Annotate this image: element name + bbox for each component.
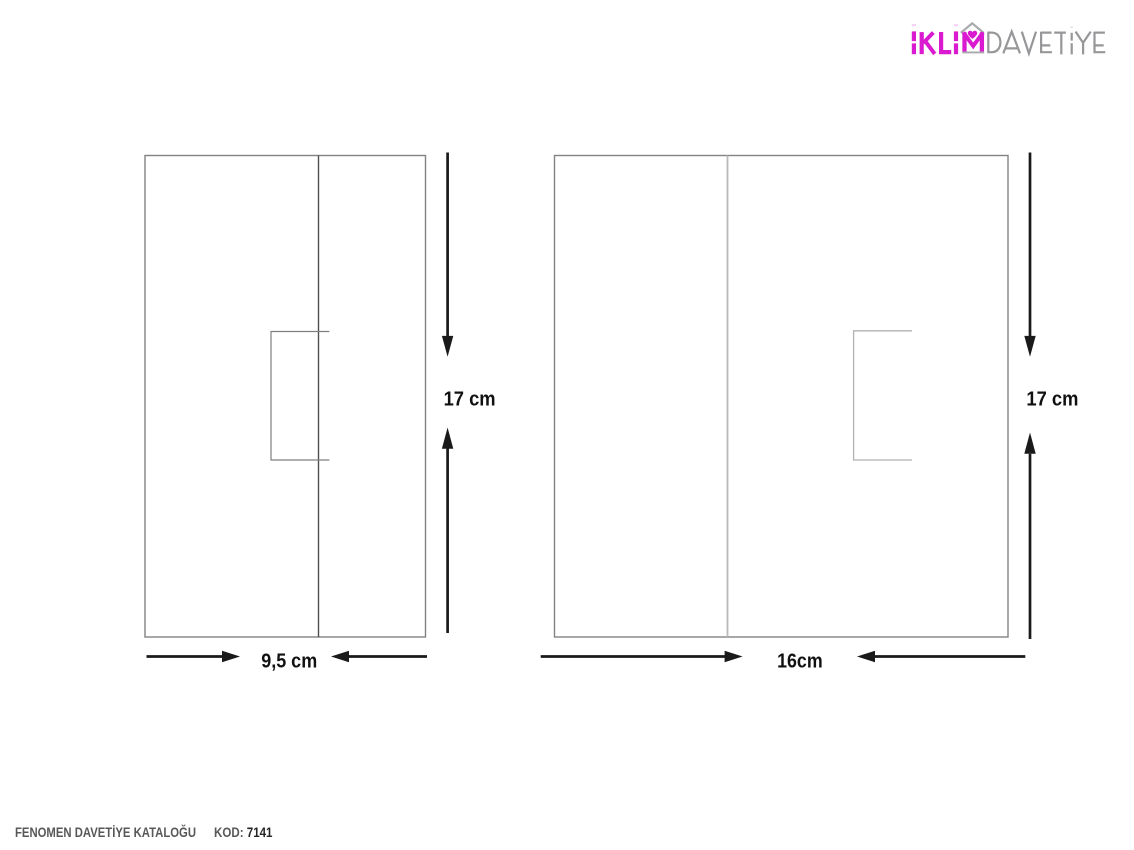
svg-text:17 cm: 17 cm	[1026, 388, 1078, 411]
svg-text:KOD: 7141: KOD: 7141	[214, 824, 273, 840]
svg-text:9,5 cm: 9,5 cm	[261, 650, 317, 673]
svg-text:16cm: 16cm	[777, 650, 823, 673]
svg-text:FENOMEN DAVETİYE KATALOĞU: FENOMEN DAVETİYE KATALOĞU	[15, 823, 196, 840]
svg-text:17 cm: 17 cm	[444, 388, 496, 411]
